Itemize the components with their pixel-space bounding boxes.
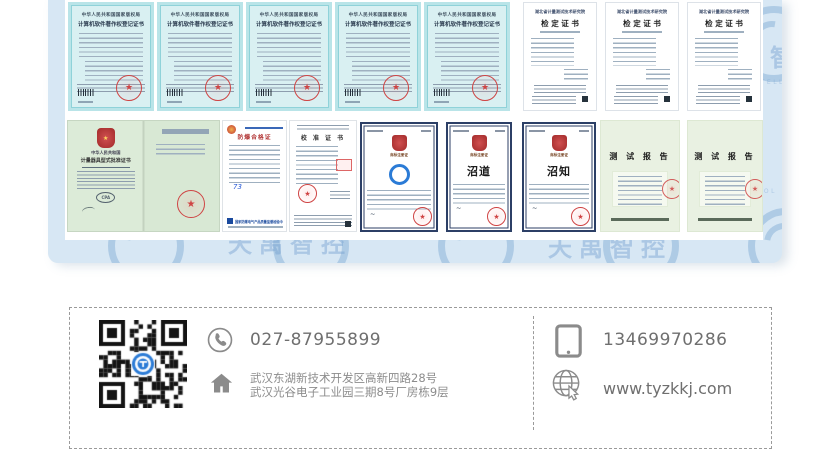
certificate-pattern-approval[interactable]: ★ 中华人民共和国 计量器具型式批准证书 CPA ★ — [67, 120, 220, 232]
address-line2: 武汉光谷电子工业园三期8号厂房栋9层 — [250, 385, 449, 399]
red-seal: ★ — [116, 75, 142, 101]
phone-icon — [207, 327, 233, 353]
red-seal: ★ — [571, 207, 590, 226]
inspection-center-logo — [227, 218, 233, 224]
red-seal: ★ — [745, 179, 763, 199]
red-stamp — [336, 159, 352, 171]
cert-title: 校 准 证 书 — [290, 133, 356, 142]
certificate-calibration[interactable]: 校 准 证 书 ★ — [289, 120, 357, 232]
certificate-software-copyright[interactable]: 中华人民共和国国家版权局 计算机软件著作权登记证书 ★ — [424, 2, 510, 111]
barcode — [582, 96, 588, 102]
contact-divider — [533, 316, 534, 430]
cert-text-lines — [79, 33, 143, 57]
signature: 73 — [233, 184, 286, 191]
certificate-software-copyright[interactable]: 中华人民共和国国家版权局 计算机软件著作权登记证书 ★ — [157, 2, 243, 111]
national-emblem — [392, 135, 407, 151]
barcode — [256, 89, 273, 96]
barcode — [78, 89, 95, 96]
red-seal: ★ — [662, 179, 680, 199]
home-icon — [209, 371, 234, 396]
cert-badge — [227, 125, 236, 134]
barcode — [345, 221, 351, 227]
national-emblem: ★ — [97, 128, 115, 148]
certificate-verification[interactable]: 湖北省计量测试技术研究院 检 定 证 书 — [687, 2, 761, 111]
phone-number: 027-87955899 — [250, 330, 381, 350]
address-line1: 武汉东湖新技术开发区高新四路28号 — [250, 371, 449, 385]
certificate-software-copyright[interactable]: 中华人民共和国国家版权局 计算机软件著作权登记证书 ★ — [246, 2, 332, 111]
barcode — [167, 89, 184, 96]
website-link[interactable]: www.tyzkkj.com — [603, 379, 732, 398]
trademark-logo — [389, 164, 410, 185]
national-emblem — [552, 135, 567, 151]
certificate-trademark[interactable]: 商标注册证 沼知 ~ ★ — [522, 122, 596, 232]
cert-header: 中华人民共和国国家版权局 — [71, 12, 151, 18]
certificate-test-report[interactable]: 测 试 报 告 ★ — [687, 120, 763, 232]
barcode — [664, 96, 670, 102]
certificates-panel: 天禹智控TIANYU INTELLIGENT CONTROL天禹智控TIANYU… — [48, 0, 782, 263]
cert-title: 测 试 报 告 — [601, 151, 679, 162]
cert-org: 湖北省计量测试技术研究院 — [524, 9, 596, 15]
globe-icon — [551, 368, 584, 401]
cert-subtitle: 商标注册证 — [362, 153, 436, 158]
trademark-text: 沼知 — [524, 163, 594, 179]
red-seal: ★ — [298, 184, 317, 203]
mobile-icon — [555, 324, 582, 358]
watermark-text: 天禹智控TIANYU INTELLIGENT CONTROL — [548, 236, 707, 263]
qr-code — [99, 320, 187, 408]
certificate-test-report[interactable]: 测 试 报 告 ★ — [600, 120, 680, 232]
certificate-trademark-logo[interactable]: 商标注册证 ~ ★ — [360, 122, 438, 232]
certificate-trademark[interactable]: 商标注册证 沼道 ~ ★ — [446, 122, 512, 232]
certificate-verification[interactable]: 湖北省计量测试技术研究院 检 定 证 书 — [523, 2, 597, 111]
cert-title: 计量器具型式批准证书 — [68, 157, 144, 164]
certificate-explosion-proof[interactable]: 防爆合格证 73 国家防爆电气产品质量监督检验中心 — [222, 120, 287, 232]
red-seal: ★ — [472, 75, 498, 101]
red-seal: ★ — [487, 207, 506, 226]
signature — [81, 206, 95, 216]
red-seal: ★ — [294, 75, 320, 101]
barcode — [746, 96, 752, 102]
red-seal: ★ — [383, 75, 409, 101]
national-emblem — [472, 135, 487, 151]
barcode — [434, 89, 451, 96]
mobile-number: 13469970286 — [603, 330, 727, 350]
cert-title: 检 定 证 书 — [524, 18, 596, 29]
address: 武汉东湖新技术开发区高新四路28号 武汉光谷电子工业园三期8号厂房栋9层 — [250, 371, 449, 399]
cert-title: 计算机软件著作权登记证书 — [71, 20, 151, 28]
red-seal: ★ — [205, 75, 231, 101]
certificate-software-copyright[interactable]: 中华人民共和国国家版权局 计算机软件著作权登记证书 ★ — [335, 2, 421, 111]
cpa-mark: CPA — [96, 192, 115, 203]
red-seal: ★ — [413, 207, 432, 226]
barcode — [345, 89, 362, 96]
red-seal: ★ — [177, 190, 205, 218]
trademark-text: 沼道 — [448, 163, 510, 179]
certificates-strip: 中华人民共和国国家版权局 计算机软件著作权登记证书 ★ 中华人民共和国国家版权局… — [65, 0, 763, 240]
certificate-verification[interactable]: 湖北省计量测试技术研究院 检 定 证 书 — [605, 2, 679, 111]
certificate-software-copyright[interactable]: 中华人民共和国国家版权局 计算机软件著作权登记证书 ★ — [68, 2, 154, 111]
inspection-center-name: 国家防爆电气产品质量监督检验中心 — [235, 219, 283, 224]
